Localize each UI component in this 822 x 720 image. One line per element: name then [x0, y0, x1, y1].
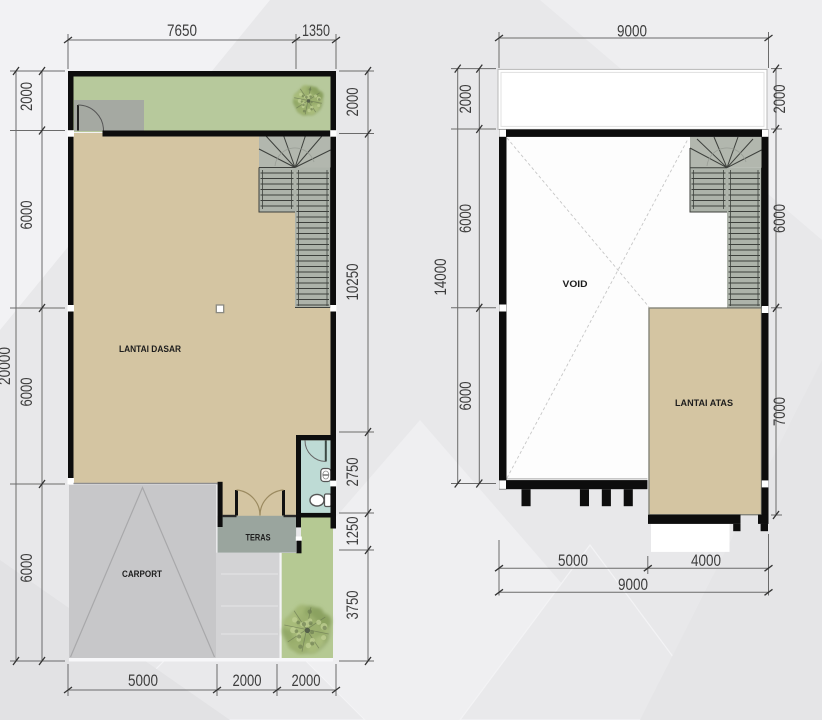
svg-text:6000: 6000 [456, 382, 475, 411]
svg-text:2000: 2000 [17, 82, 36, 111]
svg-text:9000: 9000 [617, 22, 647, 41]
svg-text:1250: 1250 [343, 517, 362, 546]
svg-text:2000: 2000 [456, 85, 475, 114]
svg-text:2000: 2000 [292, 671, 321, 690]
svg-text:5000: 5000 [128, 671, 158, 690]
svg-text:4000: 4000 [691, 551, 721, 570]
svg-text:6000: 6000 [17, 378, 36, 407]
svg-text:5000: 5000 [558, 551, 588, 570]
svg-text:14000: 14000 [431, 259, 450, 296]
svg-text:2000: 2000 [233, 671, 262, 690]
svg-text:6000: 6000 [456, 204, 475, 233]
svg-text:7000: 7000 [770, 397, 789, 426]
svg-text:LANTAI ATAS: LANTAI ATAS [675, 398, 733, 408]
svg-text:2750: 2750 [343, 458, 362, 487]
svg-text:3750: 3750 [343, 591, 362, 620]
svg-text:10250: 10250 [343, 264, 362, 301]
svg-text:VOID: VOID [563, 279, 589, 289]
svg-text:7650: 7650 [167, 21, 197, 40]
svg-text:2000: 2000 [770, 85, 789, 114]
svg-text:6000: 6000 [17, 554, 36, 583]
svg-text:6000: 6000 [770, 204, 789, 233]
svg-text:20000: 20000 [0, 347, 14, 385]
svg-text:LANTAI DASAR: LANTAI DASAR [119, 344, 181, 354]
svg-text:9000: 9000 [618, 575, 648, 594]
svg-text:2000: 2000 [343, 88, 362, 117]
svg-text:6000: 6000 [17, 201, 36, 230]
svg-text:CARPORT: CARPORT [122, 569, 162, 579]
svg-text:1350: 1350 [302, 21, 330, 40]
svg-text:TERAS: TERAS [246, 533, 271, 543]
